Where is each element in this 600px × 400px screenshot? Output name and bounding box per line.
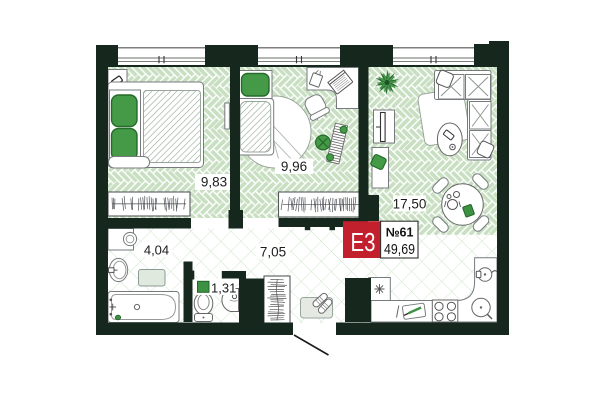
svg-text:№61: №61 (386, 226, 414, 240)
svg-text:E3: E3 (351, 227, 376, 257)
svg-text:9,83: 9,83 (201, 175, 227, 190)
svg-text:4,04: 4,04 (144, 242, 169, 257)
svg-text:17,50: 17,50 (393, 197, 427, 212)
svg-text:9,96: 9,96 (281, 159, 307, 174)
svg-text:49,69: 49,69 (384, 241, 415, 258)
svg-text:1,31: 1,31 (211, 280, 236, 295)
svg-text:7,05: 7,05 (260, 244, 286, 259)
